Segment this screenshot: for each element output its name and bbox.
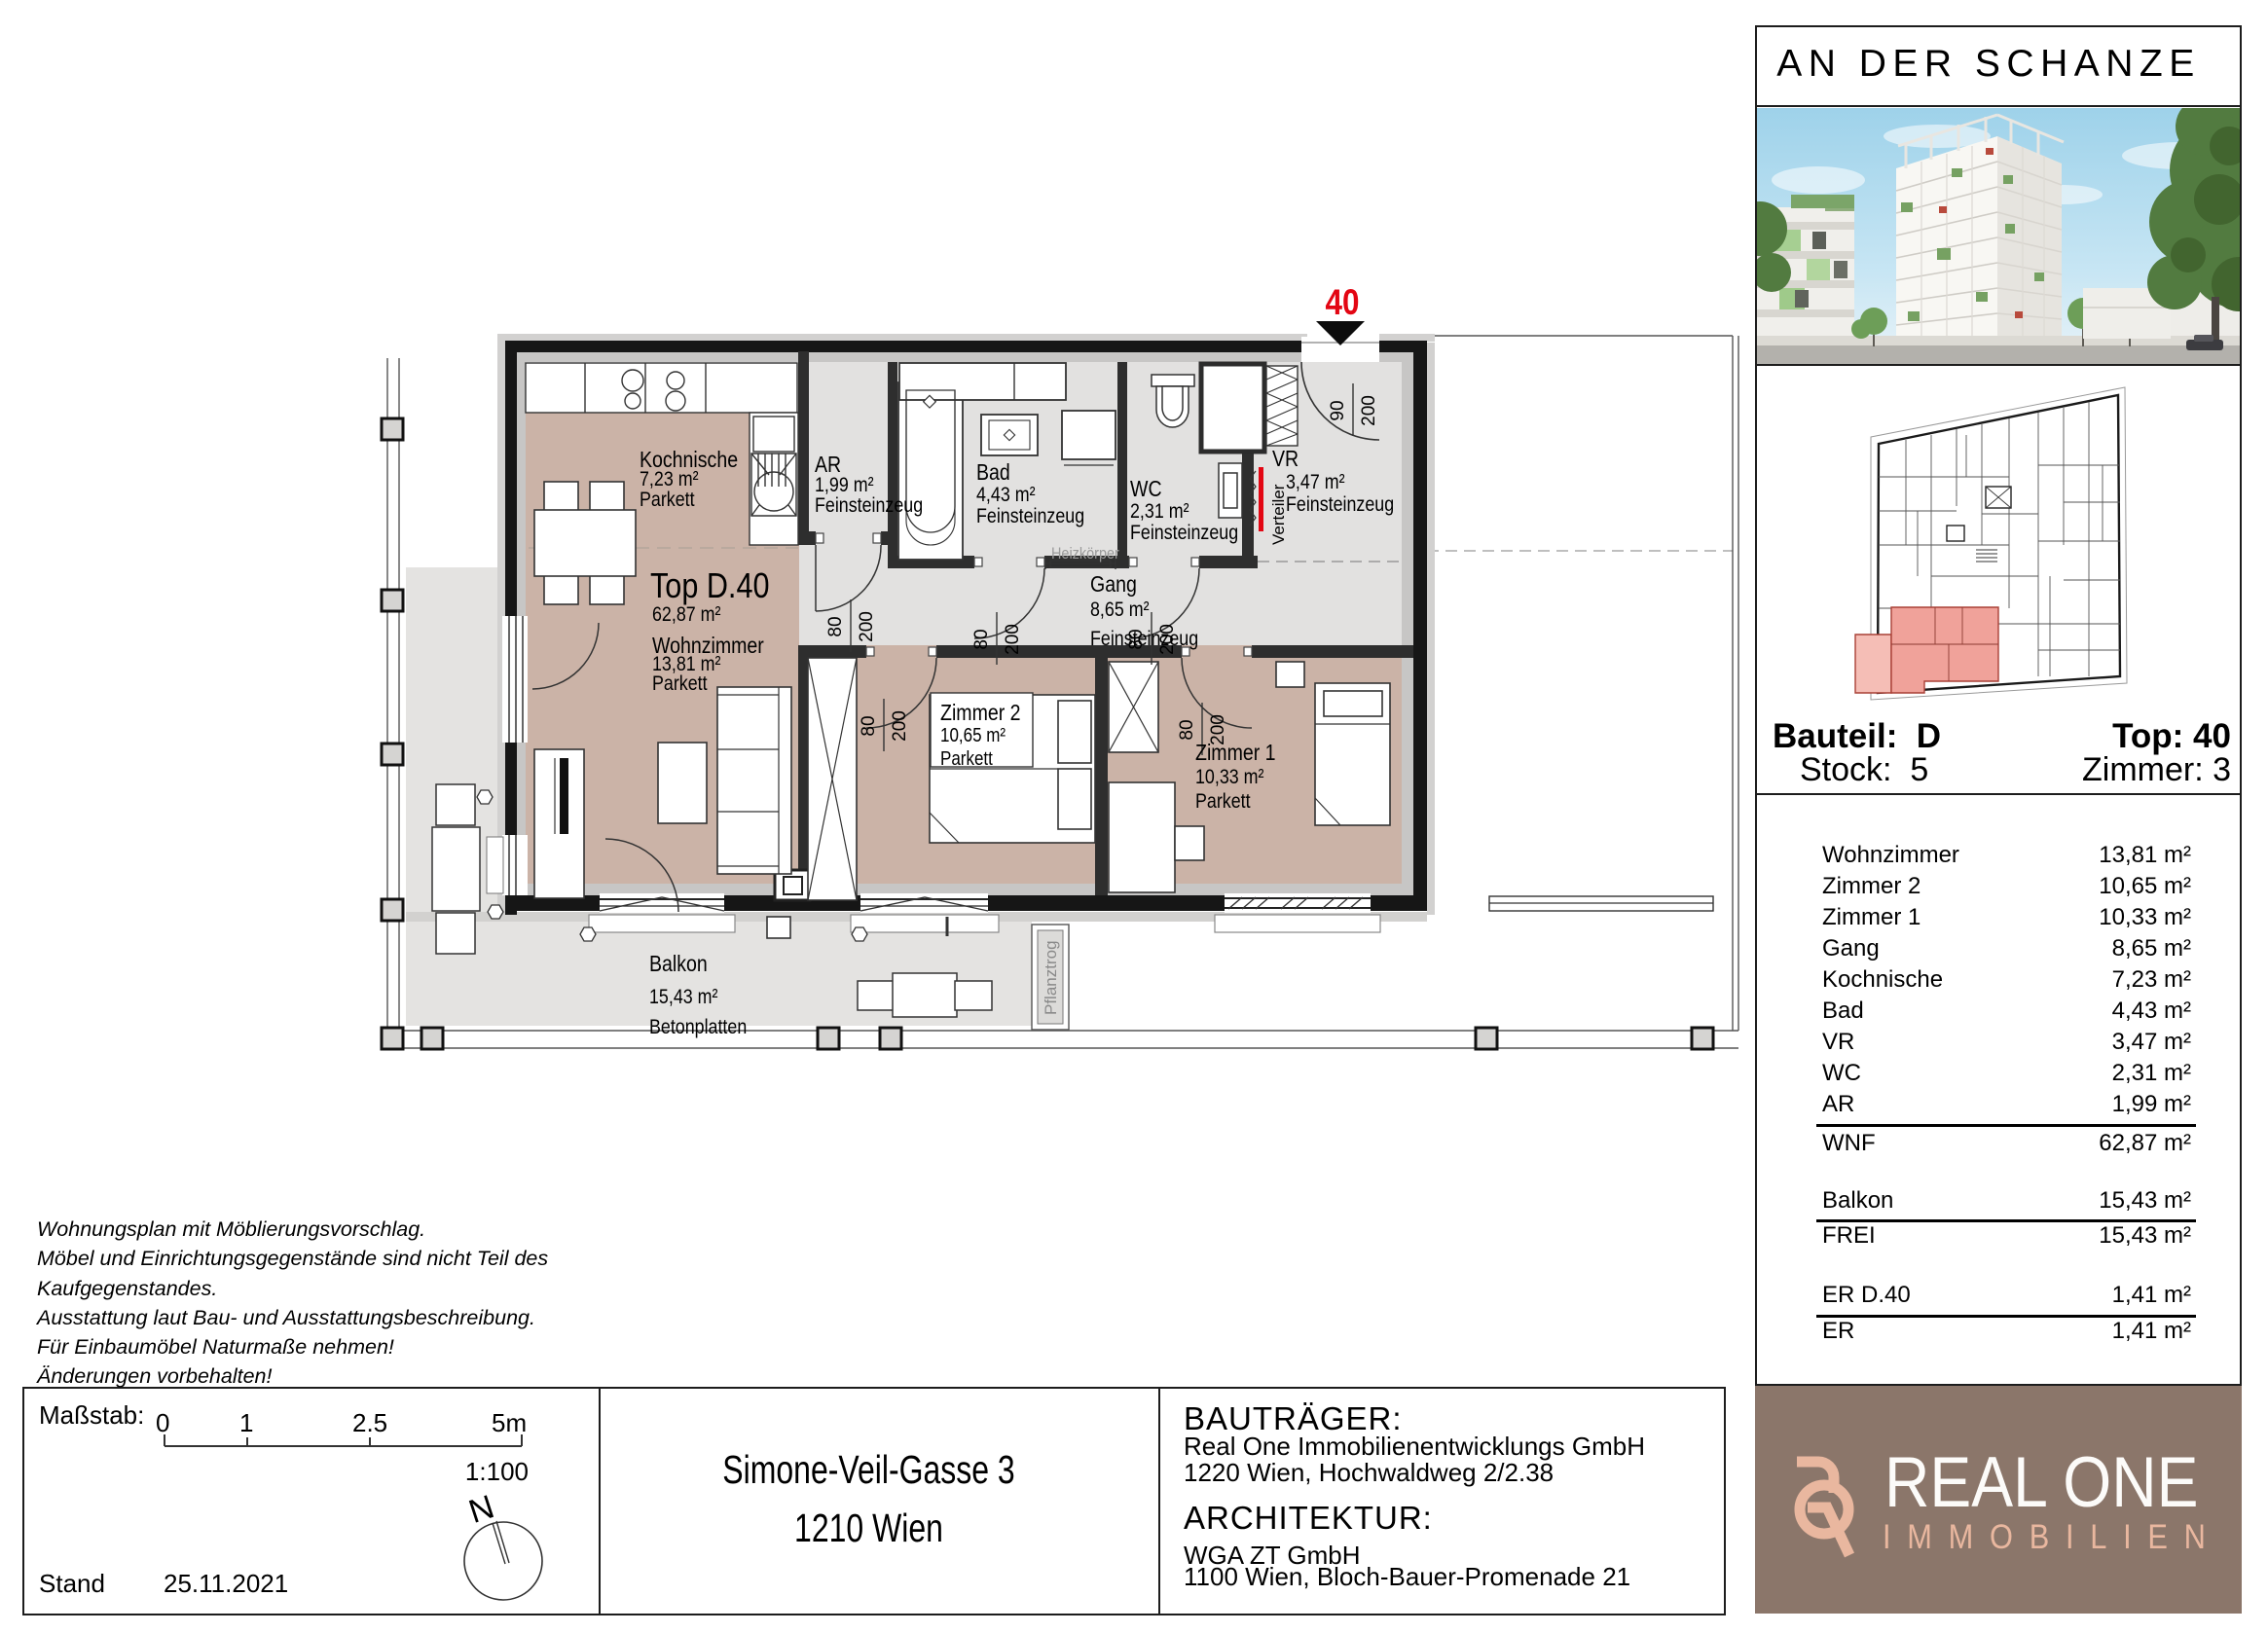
svg-text:80: 80 [859, 715, 879, 736]
svg-text:80: 80 [1177, 719, 1197, 740]
svg-text:200: 200 [1003, 624, 1023, 655]
svg-text:Pflanztrog: Pflanztrog [1042, 940, 1060, 1015]
svg-text:80: 80 [971, 629, 992, 649]
svg-text:90: 90 [1328, 400, 1348, 420]
svg-text:200: 200 [857, 611, 877, 642]
svg-text:80: 80 [825, 616, 846, 636]
svg-text:200: 200 [1359, 395, 1379, 426]
svg-text:200: 200 [890, 710, 910, 742]
